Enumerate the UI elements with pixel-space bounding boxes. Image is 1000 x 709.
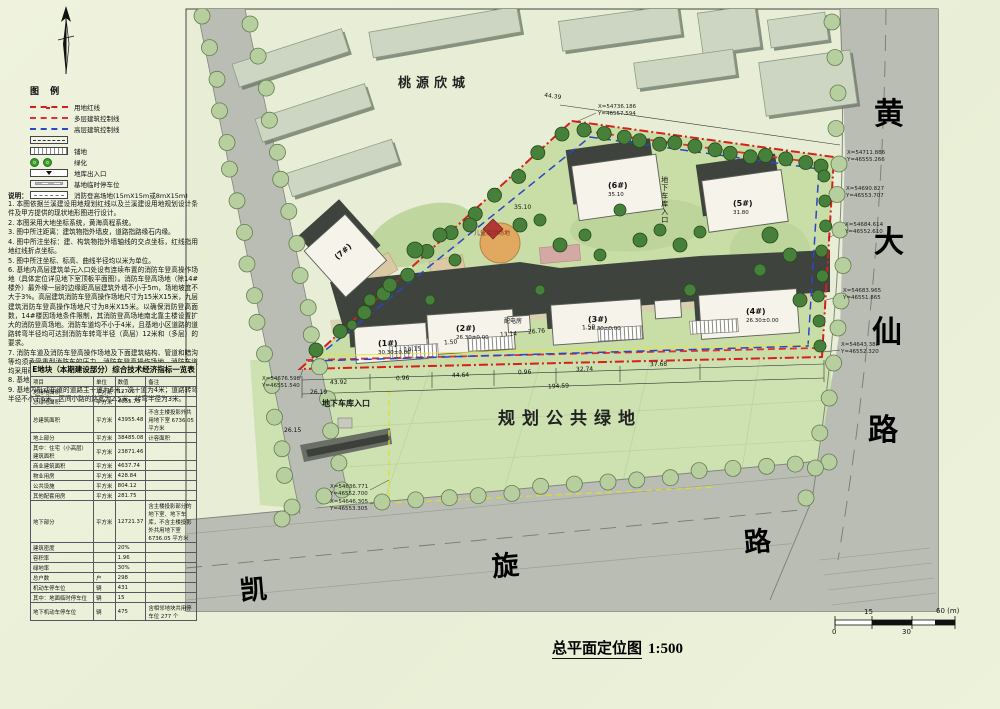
legend-item-greening: 绿化 — [30, 156, 190, 167]
list-item: 6. 基地内高层建筑单元入口处设有连续布置的消防车登高操作场地（具体定位详见地下… — [8, 266, 198, 348]
power-room-label: 配电房 — [504, 319, 522, 326]
coord-callout-3: X=54690.827Y=46553.707 — [846, 186, 884, 200]
dim-44-64: 44.64 — [452, 373, 469, 380]
scalebar-0: 0 — [832, 628, 836, 636]
legend-item-paving: 铺地 — [30, 145, 190, 156]
building-6-label: (6#) — [608, 182, 628, 191]
legend-item-parking: 基地临时停车位 — [30, 178, 190, 189]
parking-symbol — [30, 180, 68, 188]
dim-32-74: 32.74 — [576, 367, 593, 374]
coord-callout-8: X=54636.771Y=46552.700 — [330, 484, 368, 498]
dim-194-59: 194.59 — [548, 384, 569, 391]
scalebar-15: 15 — [864, 608, 873, 616]
dim-0-96a: 0.96 — [396, 376, 410, 383]
garage-entry-bottom-label: 地下车库入口 — [322, 400, 370, 409]
east-road-char-1: 黄 — [874, 98, 904, 131]
play-area-label: 儿童活动场地 — [474, 231, 510, 238]
sheet-title-scale: 1:500 — [648, 641, 683, 657]
indicator-table: E地块（本期建设部分）综合技术经济指标一览表 项目 单位 数值 备注 总用地面积… — [30, 362, 197, 621]
list-item: 1. 本图依据兰溪建设用地规划红线以及兰溪建设用地规划设计条件及甲方提供的现状地… — [8, 200, 198, 218]
legend: 图 例 用地红线 多层建筑控制线 高层建筑控制线 铺地 绿化 地库出入口 基地临… — [30, 84, 190, 200]
dim-0-96b: 0.96 — [518, 370, 532, 377]
building-2-label: (2#) — [456, 325, 476, 334]
redline-symbol — [30, 103, 68, 111]
garage-entry-mid-label: 地下车库入口 — [660, 176, 668, 224]
legend-item-redline: 用地红线 — [30, 101, 190, 112]
spot-elev-3: 35.10 — [514, 205, 531, 212]
table-title: E地块（本期建设部分）综合技术经济指标一览表 — [30, 362, 197, 376]
table-row: 绿地率30% — [31, 563, 197, 573]
building-4-label: (4#) — [746, 308, 766, 317]
coord-callout-5: X=54683.965Y=46551.865 — [843, 288, 881, 302]
sheet-title-text: 总平面定位图 — [552, 641, 642, 659]
list-item: 3. 图中所注距离：建筑物指外墙皮，道路指路缘石内缘。 — [8, 228, 198, 237]
south-road-char-2: 旋 — [491, 551, 520, 583]
north-block-label: 桃源欣城 — [398, 76, 470, 90]
table-row: 物业用房平方米428.84 — [31, 471, 197, 481]
public-green-label: 规划公共绿地 — [498, 410, 642, 429]
table-row: 其他配套用房平方米281.75 — [31, 491, 197, 501]
table-row: 总建筑面积平方米43955.48不含主楼投影外共用地下室 6736.05 平方米 — [31, 407, 197, 433]
coord-callout-2: X=54711.886Y=46555.266 — [847, 150, 885, 164]
boxline-symbol — [30, 136, 68, 144]
coord-callout-6: X=54643.388Y=46552.320 — [841, 342, 879, 356]
legend-item-boxline — [30, 134, 190, 145]
garage-entry-symbol — [30, 169, 68, 177]
table-row: 建筑密度20% — [31, 543, 197, 553]
east-road-char-4: 路 — [868, 414, 898, 447]
table-row: 其中：住宅（小高层）建筑面积平方米23871.46 — [31, 443, 197, 461]
notes-title: 说明： — [8, 190, 198, 200]
table-row: 机动车停车位辆431 — [31, 583, 197, 593]
building-1-label: (1#) — [378, 340, 398, 349]
coord-callout-1: X=54736.186Y=46557.594 — [598, 104, 636, 118]
south-road-char-3: 路 — [743, 527, 772, 559]
scalebar-60: 60 (m) — [936, 607, 959, 615]
dim-43-92: 43.92 — [330, 380, 347, 387]
legend-item-multilayer: 多层建筑控制线 — [30, 112, 190, 123]
highrise-line-symbol — [30, 125, 68, 133]
dim-13-14: 13.14 — [500, 331, 518, 339]
legend-item-highrise: 高层建筑控制线 — [30, 123, 190, 134]
building-6-elev: 35.10 — [608, 192, 624, 199]
dim-14-15: 14.15 — [404, 346, 422, 354]
coord-callout-9: X=54646.305Y=46553.305 — [330, 499, 368, 513]
legend-title: 图 例 — [30, 84, 190, 97]
dim-1-50a: 1.50 — [444, 340, 458, 348]
north-arrow-icon — [58, 6, 74, 74]
table-row: 商业建筑面积平方米4637.74 — [31, 461, 197, 471]
building-4-elev: 26.30±0.00 — [746, 318, 779, 325]
table-row: 容积率1.96 — [31, 553, 197, 563]
spot-elev-2: 26.15 — [284, 428, 301, 435]
dim-26-76: 26.76 — [528, 328, 546, 336]
building-2-elev: 26.30±0.00 — [456, 335, 489, 342]
building-5-elev: 31.80 — [733, 210, 749, 217]
table-body: 总用地面积平方米12706总绿地面积平方米4055.73总建筑面积平方米4395… — [31, 387, 197, 621]
list-item: 4. 图中所注坐标：建、构筑物指外墙轴线的交点坐标，红线指用地红线折点坐标。 — [8, 238, 198, 256]
table-row: 地下机动车停车位辆475含相邻地块共用停车位 277 个 — [31, 603, 197, 621]
table-row: 公共设施平方米804.12 — [31, 481, 197, 491]
list-item: 2. 本图采用大地坐标系统，黄海高程系统。 — [8, 219, 198, 228]
list-item: 5. 图中所注坐标、标高、曲线半径均以米为单位。 — [8, 257, 198, 266]
table-header-row: 项目 单位 数值 备注 — [31, 377, 197, 387]
table-row: 其中：地面临时停车位辆15 — [31, 593, 197, 603]
coord-callout-4: X=54684.614Y=46552.610 — [845, 222, 883, 236]
table-row: 地下部分平方米12721.37含主楼投影部分的地下室、地下车库，不含主楼投影外共… — [31, 501, 197, 543]
drawing-sheet: 图 例 用地红线 多层建筑控制线 高层建筑控制线 铺地 绿化 地库出入口 基地临… — [0, 0, 1000, 709]
scale-bar — [835, 616, 955, 629]
multilayer-line-symbol — [30, 114, 68, 122]
paving-symbol — [30, 147, 68, 155]
sheet-title: 总平面定位图1:500 — [552, 637, 683, 658]
table-row: 总绿地面积平方米4055.73 — [31, 397, 197, 407]
table-row: 地上部分平方米38485.08计容面积 — [31, 433, 197, 443]
building-5-label: (5#) — [733, 200, 753, 209]
legend-item-garage-entry: 地库出入口 — [30, 167, 190, 178]
dim-1-50b: 1.50 — [582, 325, 596, 333]
table-row: 总户数户298 — [31, 573, 197, 583]
scalebar-30: 30 — [902, 628, 911, 636]
table-row: 总用地面积平方米12706 — [31, 387, 197, 397]
dim-37-68: 37.68 — [650, 362, 667, 369]
spot-elev-1: 26.19 — [310, 390, 327, 397]
coord-callout-7: X=54676.598Y=46551.540 — [262, 376, 300, 390]
tree-icon — [30, 158, 68, 166]
south-road-char-1: 凯 — [239, 575, 268, 607]
